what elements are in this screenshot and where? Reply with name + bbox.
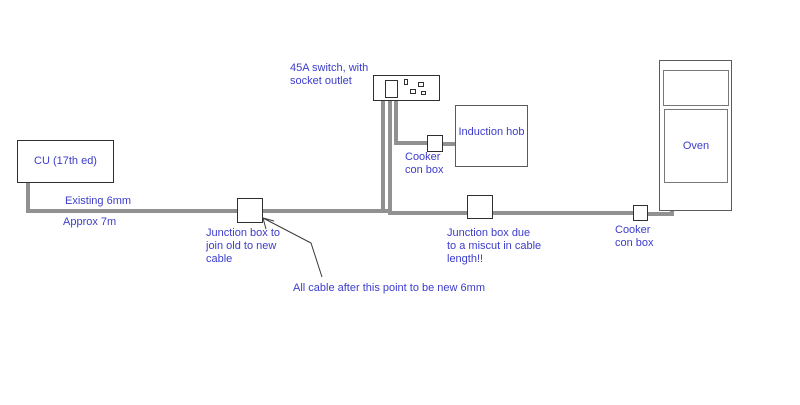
wiring-diagram: CU (17th ed) Existing 6mm Approx 7m 45A … <box>0 0 800 405</box>
annotation-arrow <box>0 0 800 405</box>
